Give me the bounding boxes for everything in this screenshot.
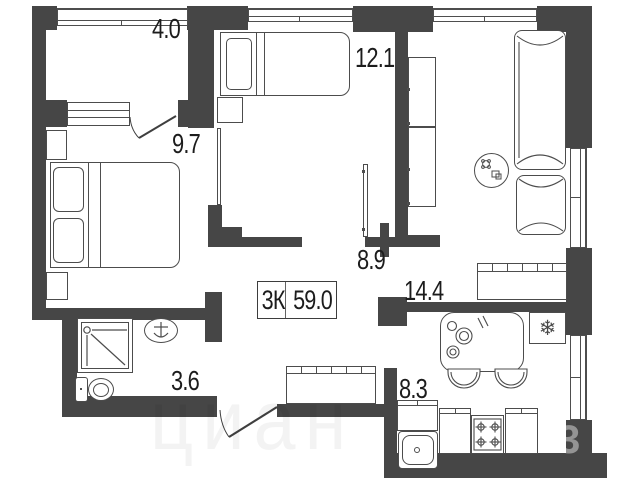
- apartment-type-label: 3К: [261, 282, 286, 318]
- burner-icon: [490, 437, 501, 448]
- flower-icon: [482, 160, 501, 179]
- watermark-text: циан: [150, 372, 355, 469]
- burner-icon: [476, 422, 487, 433]
- burner-icon: [490, 422, 501, 433]
- sofa-cushion-lines: [517, 36, 563, 231]
- watermark-digit: 3: [558, 418, 580, 463]
- bedroom1-area-label: 9.7: [172, 130, 200, 158]
- bedroom2-area-label: 12.1: [355, 44, 394, 72]
- balcony-area-label: 4.0: [152, 15, 180, 43]
- table-setting-icon: [447, 316, 488, 358]
- stool: [448, 369, 480, 388]
- kitchen-area-label: 8.3: [399, 375, 427, 403]
- faucet-icon: [154, 322, 168, 337]
- shower-icon: [84, 327, 127, 366]
- floor-plan: ❄: [0, 0, 639, 480]
- living-area-label: 14.4: [404, 277, 443, 305]
- apartment-type-box: 3К 59.0: [257, 281, 337, 319]
- apartment-total-area: 59.0: [294, 282, 332, 318]
- burner-icon: [476, 437, 487, 448]
- sink-drain-icon: [415, 448, 420, 453]
- stove-burners-icon: [474, 419, 501, 450]
- stool: [495, 369, 527, 388]
- balcony-door: [130, 116, 176, 138]
- hallway-area-label: 8.9: [357, 246, 385, 274]
